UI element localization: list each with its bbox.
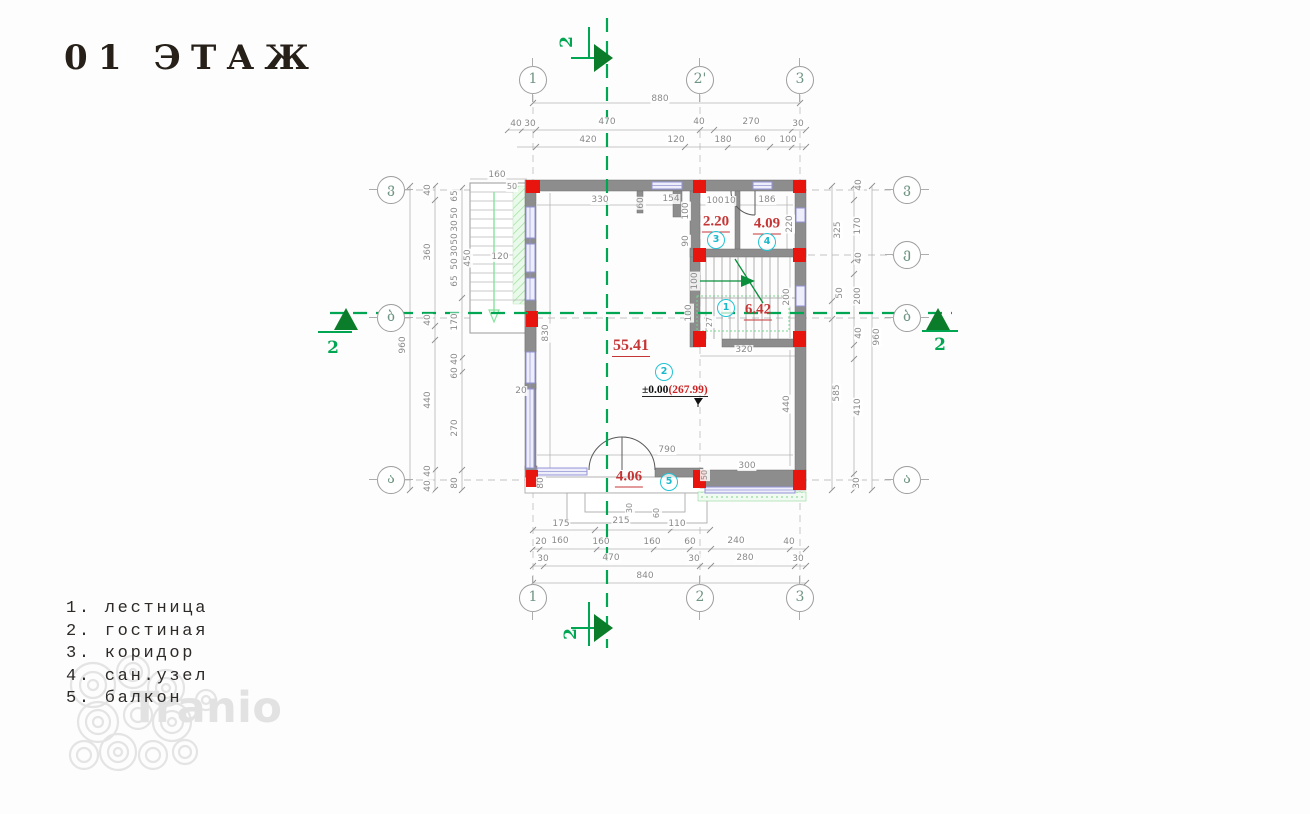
dimension-label: 40 [423, 183, 433, 196]
dimension-label: 270 [450, 418, 460, 437]
dimension-label: 160 [550, 536, 569, 546]
room-area-label: 4.06 [615, 469, 643, 488]
grid-axis-bubble: 3 [786, 66, 814, 94]
dimension-label: 470 [597, 117, 616, 127]
dimension-label: 100 [681, 201, 691, 220]
dimension-label: 450 [463, 248, 473, 267]
room-number-badge: 4 [758, 233, 776, 251]
dimension-label: 40 [423, 464, 433, 477]
dimension-label: 170 [853, 216, 863, 235]
dimension-label: 50 [450, 257, 460, 270]
legend-item-stairs: 1. лестница [66, 598, 208, 621]
dimension-label: 40 [423, 479, 433, 492]
dimension-label: 120 [666, 135, 685, 145]
grid-axis-bubble: ბ [377, 304, 405, 332]
dimension-label: 100 [705, 196, 724, 206]
dimension-label: 40 [692, 117, 705, 127]
dimension-label: 60 [753, 135, 766, 145]
grid-axis-label: ვ [387, 181, 395, 197]
section-label: 2 [327, 338, 339, 358]
dimension-label: 220 [785, 214, 795, 233]
dimension-label: 300 [737, 461, 756, 471]
room-number-badge: 5 [660, 473, 678, 491]
dimension-label: 30 [687, 554, 700, 564]
grid-axis-bubble: ვ [377, 176, 405, 204]
dimension-label: 30 [450, 219, 460, 232]
dimension-label: 60 [652, 507, 662, 519]
dimension-label: 960 [398, 335, 408, 354]
grid-axis-bubble: ბ [893, 304, 921, 332]
dimension-label: 40 [854, 326, 864, 339]
dimension-label: 30 [791, 554, 804, 564]
legend-item-livingroom: 2. гостиная [66, 621, 208, 644]
grid-axis-label: 3 [796, 589, 805, 605]
dimension-label: 30 [852, 476, 862, 489]
dimension-label: 420 [578, 135, 597, 145]
dimension-label: 280 [735, 553, 754, 563]
section-label: 2 [934, 335, 946, 355]
dimension-label: 60 [683, 537, 696, 547]
dimension-label: 30 [536, 554, 549, 564]
dimension-label: 40 [782, 537, 795, 547]
grid-axis-label: 3 [796, 71, 805, 87]
dimension-label: 200 [782, 287, 792, 306]
dimension-label: 10 [723, 196, 736, 206]
grid-axis-label: ბ [387, 309, 395, 325]
dimension-label: 40 [423, 313, 433, 326]
section-label: 2 [557, 36, 577, 48]
dimension-label: 27 [705, 316, 715, 328]
grid-axis-bubble: 3 [786, 584, 814, 612]
dimension-label: 160 [487, 170, 506, 180]
dimension-label: 186 [757, 195, 776, 205]
grid-axis-label: ბ [903, 309, 911, 325]
dimension-label: 470 [601, 553, 620, 563]
grid-axis-label: 2 [696, 589, 705, 605]
dimension-label: 20 [514, 386, 527, 396]
dimension-label: 50 [700, 469, 710, 481]
dimension-label: 40 [450, 352, 460, 365]
grid-axis-label: ე [903, 246, 911, 262]
dimension-label: 30 [791, 119, 804, 129]
room-area-label: 55.41 [612, 337, 650, 357]
grid-axis-bubble: 1 [519, 66, 547, 94]
grid-axis-label: ა [387, 471, 395, 487]
dimension-label: 325 [833, 220, 843, 239]
dimension-label: 40 [509, 119, 522, 129]
dimension-label: 110 [667, 519, 686, 529]
dimension-label: 100 [684, 303, 694, 322]
dimension-label: 100 [690, 271, 700, 290]
legend-item-balcony: 5. балкон [66, 688, 208, 711]
grid-axis-bubble: 1 [519, 584, 547, 612]
dimension-label: 60 [450, 366, 460, 379]
room-number-badge: 1 [717, 299, 735, 317]
dimension-label: 100 [778, 135, 797, 145]
dimension-label: 154 [661, 194, 680, 204]
dimension-label: 790 [657, 445, 676, 455]
dimension-label: 240 [726, 536, 745, 546]
grid-axis-bubble: ვ [893, 176, 921, 204]
grid-axis-bubble: 2 [686, 584, 714, 612]
dimension-label: 120 [490, 252, 509, 262]
level-mark-symbol [694, 398, 703, 407]
grid-axis-label: 2' [694, 71, 707, 87]
dimension-label: 30 [523, 119, 536, 129]
grid-axis-bubble: ა [893, 466, 921, 494]
dimension-label: 50 [450, 206, 460, 219]
dimension-label: 200 [853, 286, 863, 305]
level-mark: ±0.00(267.99) [642, 384, 708, 397]
dimension-label: 90 [681, 234, 691, 247]
legend-item-bathroom: 4. сан.узел [66, 666, 208, 689]
dimension-label: 80 [450, 476, 460, 489]
dimension-label: 410 [853, 397, 863, 416]
room-number-badge: 2 [655, 363, 673, 381]
level-mark-value: ±0.00 [642, 384, 668, 396]
grid-axis-label: 1 [529, 71, 538, 87]
grid-axis-label: 1 [529, 589, 538, 605]
dimension-label: 270 [741, 117, 760, 127]
floor-plan-page: Tranio 01 ЭТАЖ 1. лестница 2. гостиная 3… [0, 0, 1310, 814]
dimension-label: 840 [635, 571, 654, 581]
dimension-label: 170 [450, 312, 460, 331]
dimension-label: 30 [625, 502, 635, 514]
dimension-label: 215 [611, 516, 630, 526]
dimension-label: 160 [642, 537, 661, 547]
dimension-label: 830 [541, 323, 551, 342]
dimension-label: 440 [782, 394, 792, 413]
grid-axis-bubble: ა [377, 466, 405, 494]
grid-axis-label: ა [903, 471, 911, 487]
room-area-label: 6.42 [744, 302, 772, 321]
dimension-label: 180 [713, 135, 732, 145]
dimension-label: 65 [450, 189, 460, 202]
grid-axis-bubble: 2' [686, 66, 714, 94]
dimension-label: 60 [636, 196, 646, 209]
dimension-label: 160 [591, 537, 610, 547]
dimension-label: 40 [854, 178, 864, 191]
room-area-label: 4.09 [753, 216, 781, 235]
legend-item-corridor: 3. коридор [66, 643, 208, 666]
dimension-label: 80 [536, 476, 546, 489]
level-mark-elevation: (267.99) [668, 384, 707, 396]
room-legend: 1. лестница 2. гостиная 3. коридор 4. са… [66, 598, 208, 711]
dimension-label: 960 [872, 327, 882, 346]
dimension-label: 50 [835, 286, 845, 299]
dimension-label: 360 [423, 242, 433, 261]
dimension-label: 175 [551, 519, 570, 529]
room-number-badge: 3 [707, 231, 725, 249]
dimension-label: 440 [423, 390, 433, 409]
dimension-label: 880 [650, 94, 669, 104]
dimension-label: 585 [832, 383, 842, 402]
dimension-label: 20 [534, 537, 547, 547]
dimension-label: 320 [734, 345, 753, 355]
dimension-label: 40 [854, 251, 864, 264]
grid-axis-bubble: ე [893, 241, 921, 269]
dimension-label: 65 [450, 274, 460, 287]
dimension-label: 30 [450, 244, 460, 257]
section-label: 2 [561, 628, 581, 640]
dimension-label: 330 [590, 195, 609, 205]
room-area-label: 2.20 [702, 214, 730, 233]
dimension-label: 50 [506, 182, 518, 192]
grid-axis-label: ვ [903, 181, 911, 197]
